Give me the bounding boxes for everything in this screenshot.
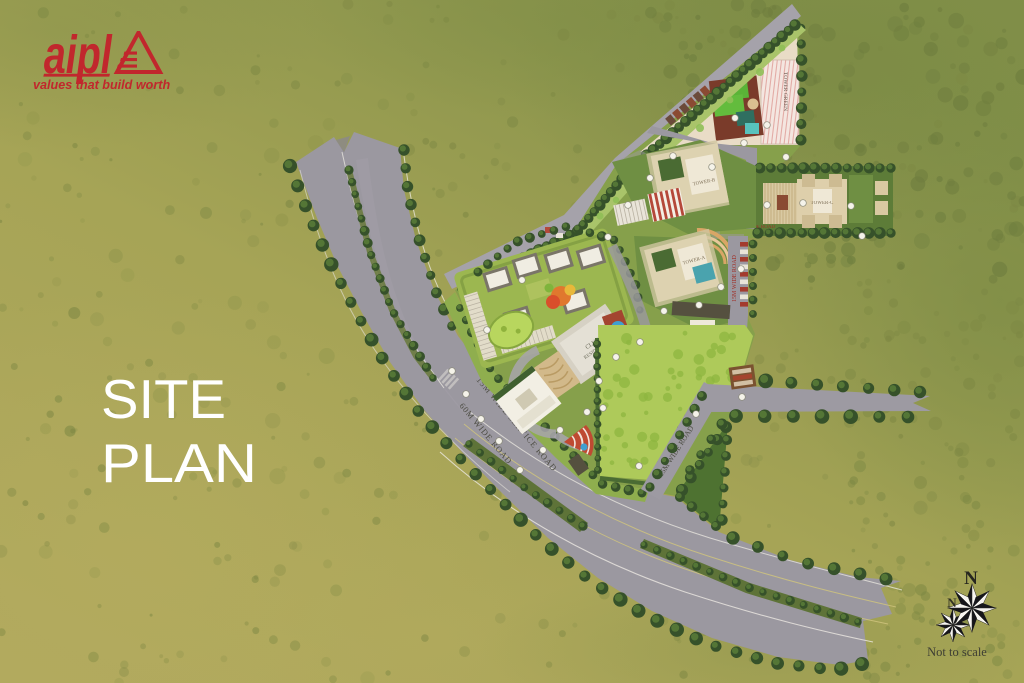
svg-text:TOWER-C: TOWER-C (811, 201, 834, 206)
svg-text:TOWER GREEN: TOWER GREEN (782, 72, 788, 111)
svg-text:values that build worth: values that build worth (33, 78, 170, 92)
svg-text:Not to scale: Not to scale (927, 645, 987, 659)
svg-text:N: N (964, 568, 978, 589)
svg-text:PLAN: PLAN (101, 432, 257, 494)
svg-text:N: N (947, 595, 957, 610)
svg-text:15M WIDE ROAD: 15M WIDE ROAD (732, 254, 738, 302)
svg-text:SITE: SITE (101, 368, 226, 430)
